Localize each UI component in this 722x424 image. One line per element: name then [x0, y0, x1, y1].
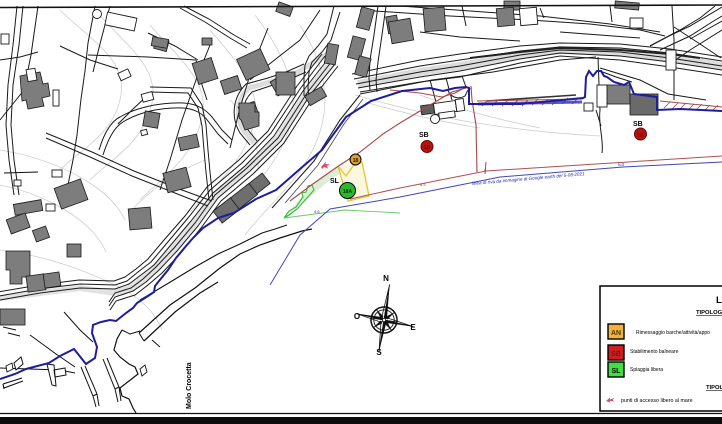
svg-text:S: S: [376, 348, 382, 357]
svg-text:1B: 1B: [424, 145, 431, 151]
svg-text:SL: SL: [612, 368, 622, 375]
svg-text:O: O: [354, 312, 360, 321]
svg-text:L: L: [716, 295, 722, 306]
svg-text:4.6: 4.6: [314, 209, 320, 214]
svg-text:Molo Crocetta: Molo Crocetta: [186, 362, 193, 409]
svg-text:18: 18: [353, 158, 359, 164]
svg-text:punti di accesso libero al mar: punti di accesso libero al mare: [621, 398, 693, 404]
svg-text:TIPOLOG: TIPOLOG: [696, 310, 722, 316]
svg-text:Stabilimento balneare: Stabilimento balneare: [630, 349, 679, 355]
svg-text:TIPOL: TIPOL: [706, 385, 722, 391]
svg-text:lu3: lu3: [618, 162, 625, 167]
svg-text:N: N: [383, 274, 389, 283]
svg-text:SB: SB: [633, 121, 643, 128]
svg-text:SL: SL: [330, 178, 340, 185]
svg-text:AN: AN: [611, 330, 621, 337]
svg-text:1B: 1B: [637, 133, 644, 139]
svg-text:Spiaggia libera: Spiaggia libera: [630, 367, 663, 373]
svg-text:Rimessaggio barche/attività/ap: Rimessaggio barche/attività/appo: [636, 330, 710, 336]
svg-text:8.5: 8.5: [420, 182, 426, 187]
svg-text:E: E: [410, 323, 416, 332]
svg-text:18A: 18A: [343, 189, 353, 195]
svg-text:SB: SB: [419, 132, 429, 139]
svg-text:SB: SB: [611, 351, 621, 358]
